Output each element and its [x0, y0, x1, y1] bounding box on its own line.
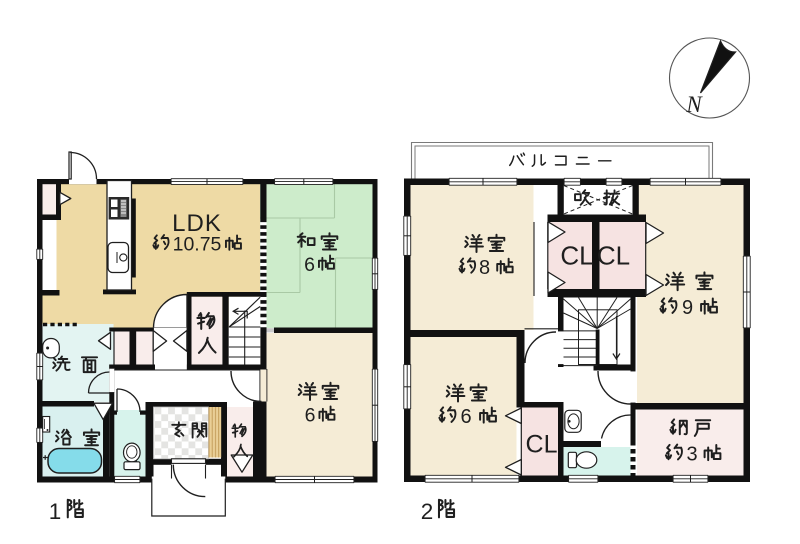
svg-text:CL: CL [560, 241, 593, 271]
svg-text:10.75: 10.75 [173, 233, 222, 255]
svg-text:9: 9 [682, 297, 693, 319]
svg-text:N: N [685, 92, 703, 117]
svg-text:3: 3 [686, 444, 697, 466]
svg-text:6: 6 [304, 254, 315, 276]
svg-text:1: 1 [49, 499, 62, 524]
svg-text:8: 8 [479, 257, 490, 279]
svg-text:CL: CL [597, 241, 630, 271]
svg-text:CL: CL [526, 431, 558, 459]
svg-text:2: 2 [421, 499, 434, 524]
svg-text:6: 6 [305, 404, 316, 426]
svg-text:6: 6 [460, 406, 471, 428]
